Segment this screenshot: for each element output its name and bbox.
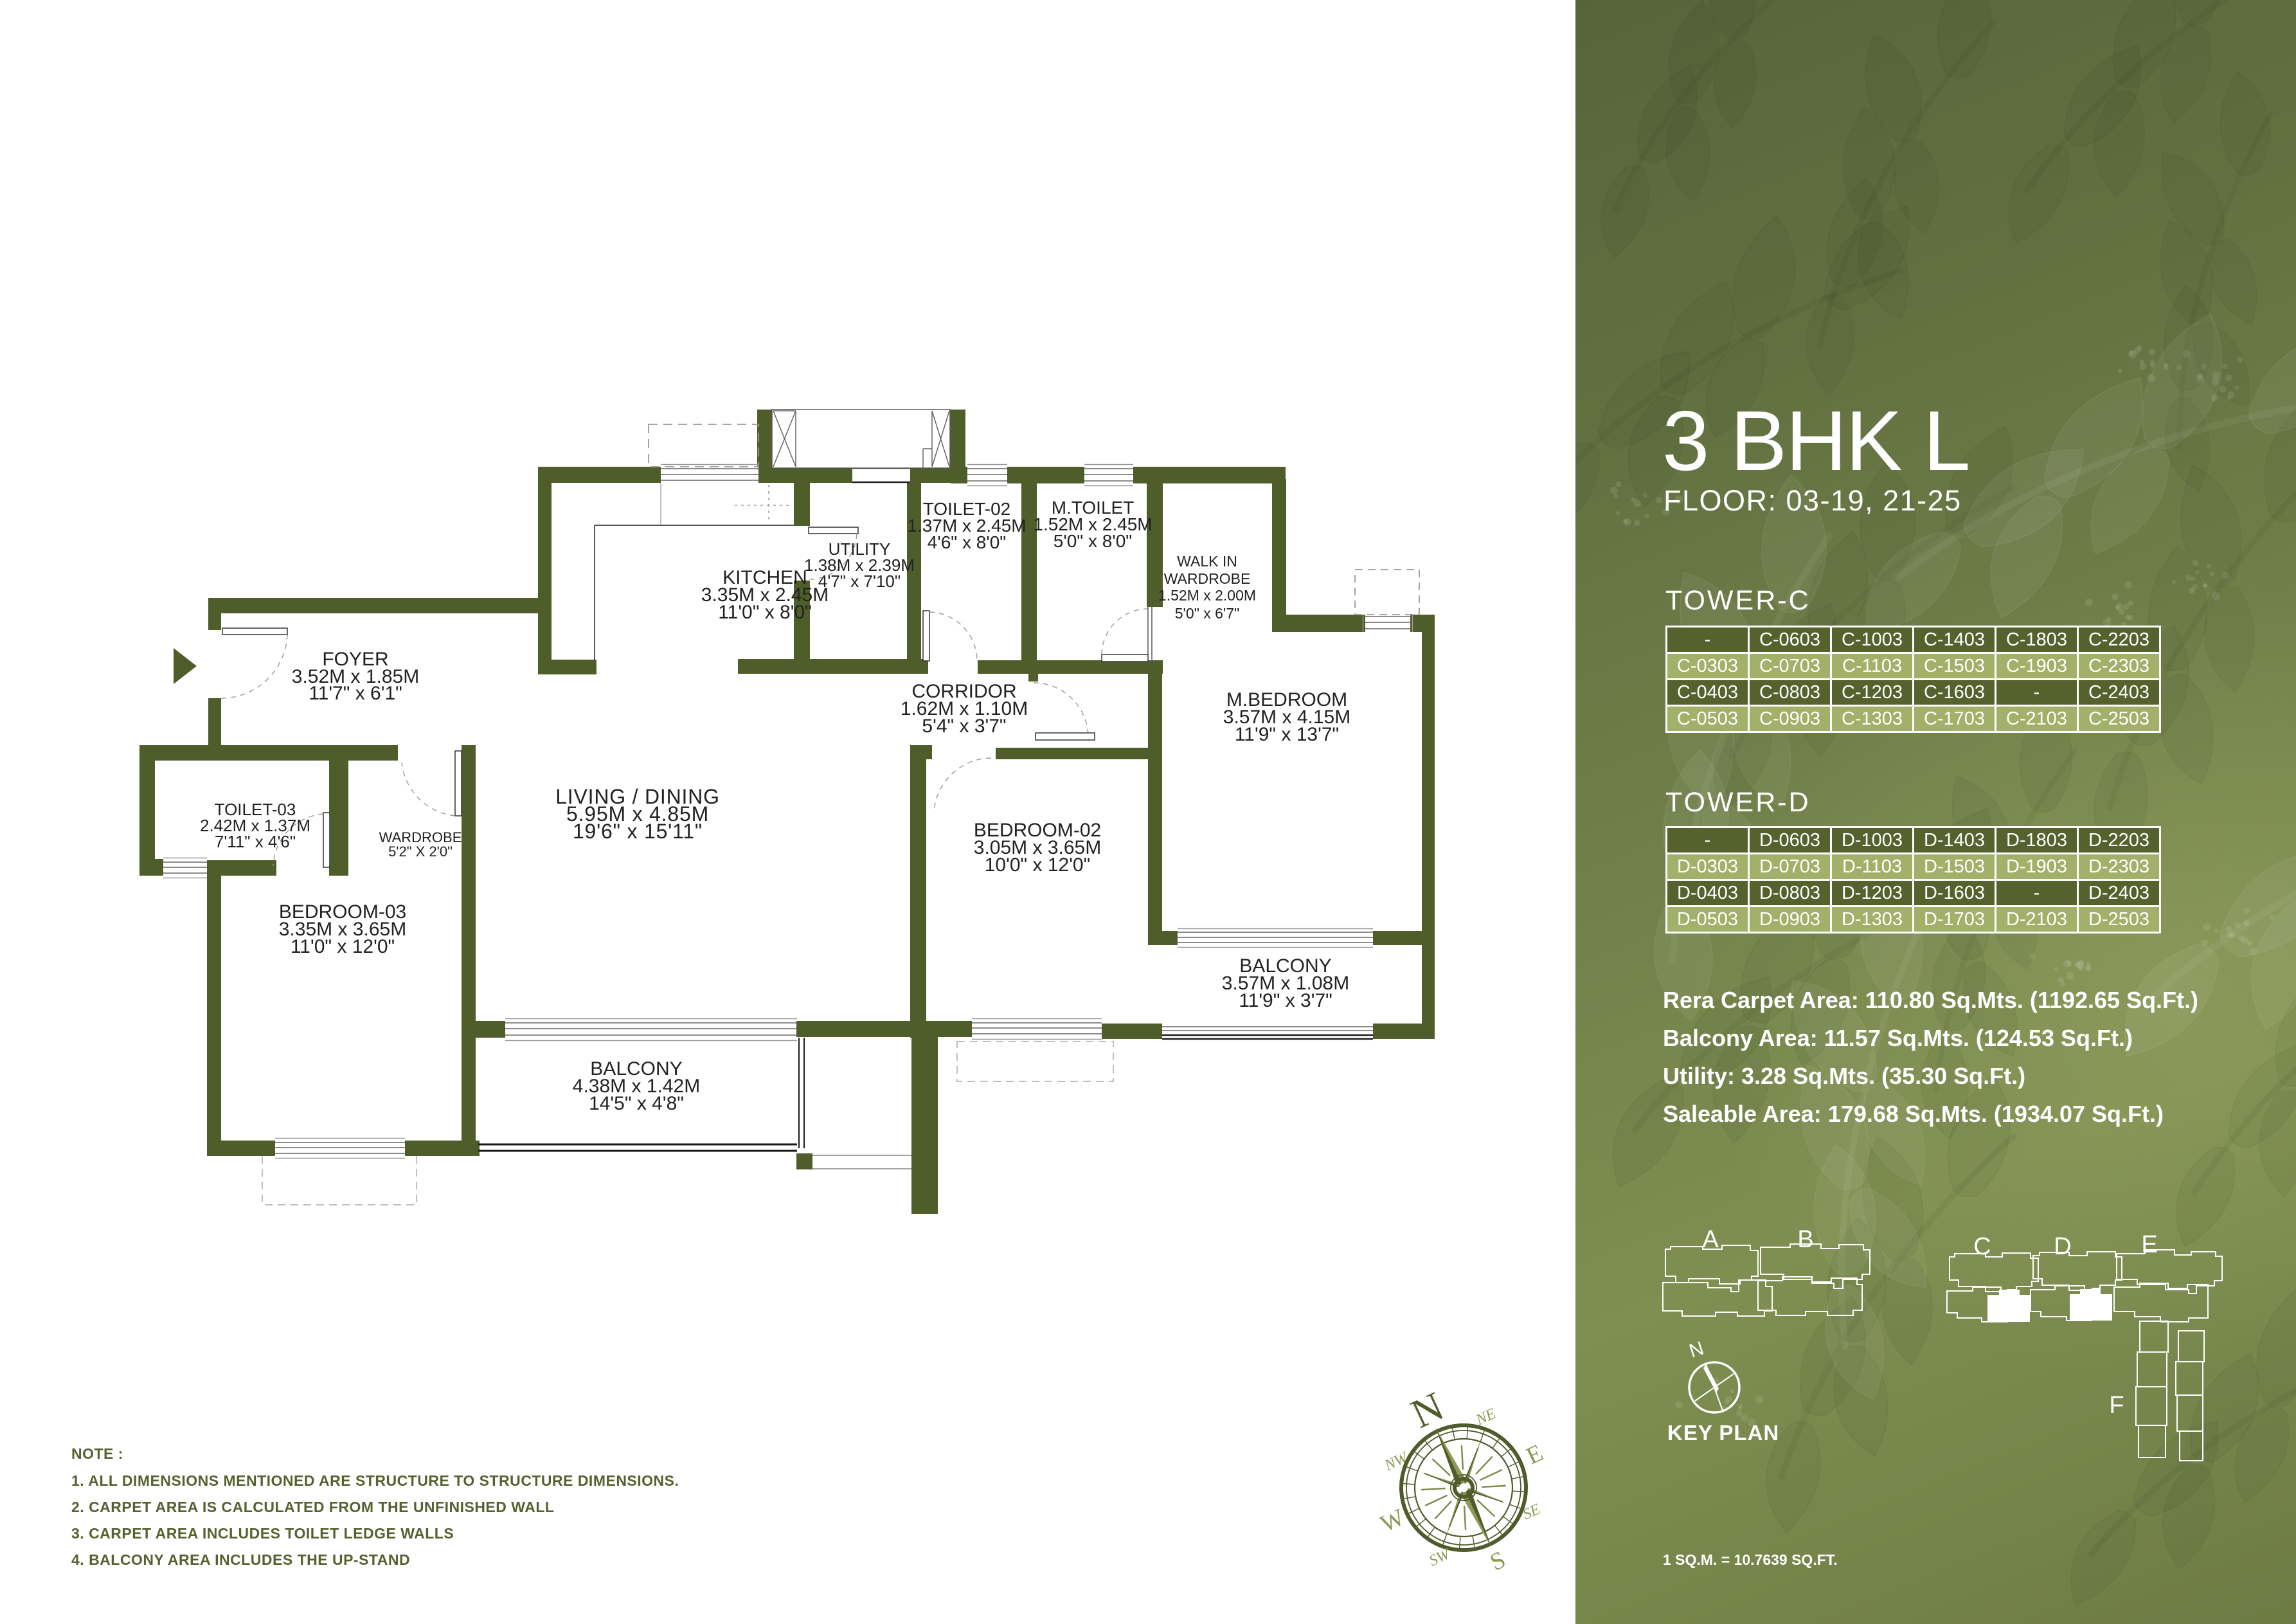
svg-text:7'11" x 4'6": 7'11" x 4'6" [215,832,296,851]
svg-text:NW: NW [1381,1448,1411,1474]
svg-text:F: F [2109,1392,2124,1419]
svg-text:E: E [1522,1439,1547,1470]
svg-text:2. CARPET AREA IS CALCULATED F: 2. CARPET AREA IS CALCULATED FROM THE UN… [71,1499,554,1515]
svg-text:4'6" x 8'0": 4'6" x 8'0" [928,532,1006,552]
svg-text:S: S [1486,1546,1510,1576]
svg-text:WARDROBE: WARDROBE [1164,570,1251,587]
svg-text:B: B [1797,1226,1813,1253]
svg-text:4'7" x 7'10": 4'7" x 7'10" [818,572,901,591]
svg-text:5'2" X 2'0": 5'2" X 2'0" [388,844,453,860]
svg-text:WALK IN: WALK IN [1177,553,1237,570]
svg-text:1.52M x 2.00M: 1.52M x 2.00M [1158,587,1256,604]
svg-text:11'0" x 8'0": 11'0" x 8'0" [718,602,812,623]
svg-text:4. BALCONY AREA INCLUDES THE U: 4. BALCONY AREA INCLUDES THE UP-STAND [71,1551,410,1568]
svg-text:5'4" x 3'7": 5'4" x 3'7" [922,716,1006,737]
svg-text:3. CARPET AREA INCLUDES TOILET: 3. CARPET AREA INCLUDES TOILET LEDGE WAL… [71,1525,454,1542]
svg-text:NOTE :: NOTE : [71,1445,123,1462]
svg-text:19'6" x 15'11": 19'6" x 15'11" [573,820,703,843]
svg-text:A: A [1702,1226,1719,1253]
svg-text:11'0" x 12'0": 11'0" x 12'0" [291,936,395,957]
svg-text:11'7" x 6'1": 11'7" x 6'1" [309,683,402,704]
svg-text:E: E [2141,1231,2157,1258]
svg-text:1. ALL DIMENSIONS MENTIONED AR: 1. ALL DIMENSIONS MENTIONED ARE STRUCTUR… [71,1472,679,1489]
svg-text:D: D [2054,1233,2071,1260]
svg-text:5'0" x 8'0": 5'0" x 8'0" [1054,531,1132,551]
svg-text:14'5" x 4'8": 14'5" x 4'8" [589,1093,684,1114]
svg-text:11'9" x 3'7": 11'9" x 3'7" [1239,990,1332,1011]
svg-text:11'9" x 13'7": 11'9" x 13'7" [1235,724,1339,745]
svg-text:N: N [1687,1338,1707,1362]
svg-text:C: C [1973,1233,1991,1260]
svg-text:10'0" x 12'0": 10'0" x 12'0" [985,854,1091,876]
svg-text:5'0" x 6'7": 5'0" x 6'7" [1175,605,1240,622]
